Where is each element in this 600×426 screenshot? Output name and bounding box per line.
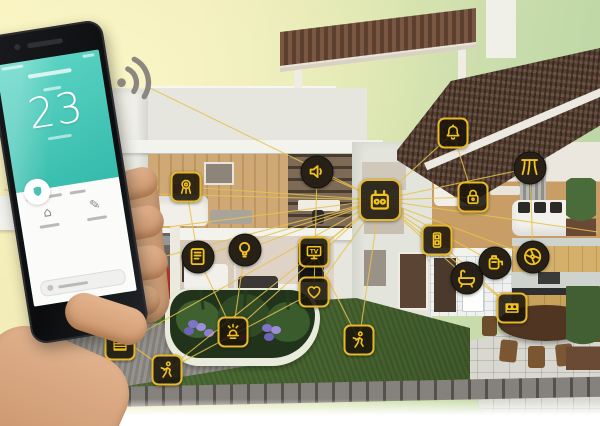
tv-wall-panel	[298, 244, 324, 282]
garden-bed	[170, 290, 315, 358]
pergola-roof-tiles	[280, 8, 476, 70]
red-flowers	[228, 330, 237, 337]
master-bedroom	[148, 154, 288, 228]
phone-camera-dot	[14, 44, 21, 51]
study-room	[288, 154, 360, 228]
desk-chair	[312, 210, 324, 224]
stair-opening-mid	[364, 208, 404, 234]
purple-flowers-1	[188, 320, 198, 328]
dining-chair-4	[482, 316, 497, 336]
tall-grass-3	[285, 290, 290, 310]
washer	[462, 282, 484, 312]
upper-cabinets	[512, 246, 600, 272]
stair-opening-upper	[362, 162, 406, 190]
sofa-cushion-2	[534, 202, 546, 213]
entry-door	[398, 252, 428, 310]
bathroom-door	[434, 258, 456, 312]
rug	[210, 210, 252, 224]
purple-flowers-2	[262, 324, 272, 332]
pink-pillow-small	[186, 258, 198, 267]
dining-chair-1	[499, 339, 518, 363]
sofa-cushion-1	[518, 202, 530, 213]
wall-picture	[204, 162, 234, 185]
dining-chair-2	[528, 346, 545, 368]
sofa-cushion-3	[550, 202, 562, 213]
smart-home-scene: TV 23	[0, 0, 600, 426]
bathroom	[430, 256, 515, 316]
potted-plant	[566, 178, 596, 236]
garden-planter-wall	[165, 288, 320, 366]
patio-plant	[566, 286, 600, 370]
floor-slab-upper	[78, 140, 383, 153]
side-window	[364, 250, 386, 286]
phone-earpiece	[27, 38, 63, 49]
shrub-1	[176, 300, 220, 338]
range-hood	[538, 272, 560, 284]
pink-pillow	[172, 184, 183, 193]
bed-small	[184, 264, 228, 290]
chimney	[486, 0, 516, 58]
